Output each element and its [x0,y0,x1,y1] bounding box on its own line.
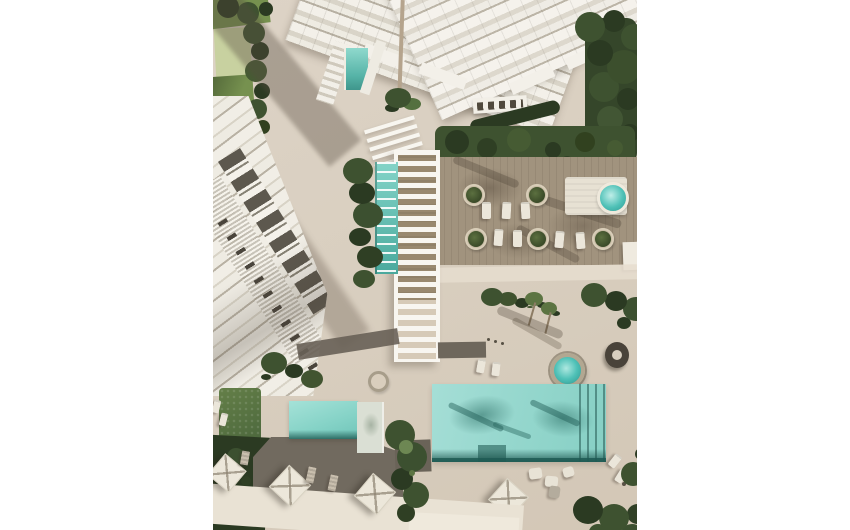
trees-right-mid [581,283,607,307]
palm-planter [592,228,614,250]
white-margin-left [0,0,213,530]
garden-right-trees [575,12,605,42]
pebble-dots [487,338,490,341]
pool-chair-gray [548,485,561,498]
sun-lounger [482,202,491,219]
palm-crown-tower [385,88,411,108]
main-pool [432,384,606,462]
palm-shadow-pool [433,382,532,448]
tree-big-bottom-light [399,440,413,454]
hedge-mid [481,288,503,306]
daybed-cushion [612,350,622,360]
sun-lounger [521,202,531,219]
hedge-lane-pool [343,158,373,184]
pool-chair [528,467,542,480]
sun-lounger [493,229,503,247]
garden-band-texture [445,130,469,154]
sun-lounger [575,232,585,250]
round-spa-upper [597,182,629,214]
lane-pool-steps [377,162,396,274]
tree-shadow-shelf [359,408,383,442]
sun-lounger [502,202,512,219]
white-margin-right [637,0,850,530]
aerial-render [213,0,637,530]
vegetation-bottom-right [573,496,603,524]
pool-deep-edge [289,430,358,439]
render-frame [0,0,850,530]
walkway-dark-right [438,342,486,359]
round-table [368,371,389,392]
palm-planter [527,228,549,250]
sun-lounger [491,362,500,377]
palm-planter [465,228,487,250]
pool-edge-line [432,458,606,462]
sun-lounger [513,230,522,247]
small-pool [289,401,358,439]
hedge-townhouse-bottom [261,352,287,374]
pergola-slats [394,150,440,362]
round-spa-lower [550,353,585,388]
sun-lounger [554,231,564,249]
